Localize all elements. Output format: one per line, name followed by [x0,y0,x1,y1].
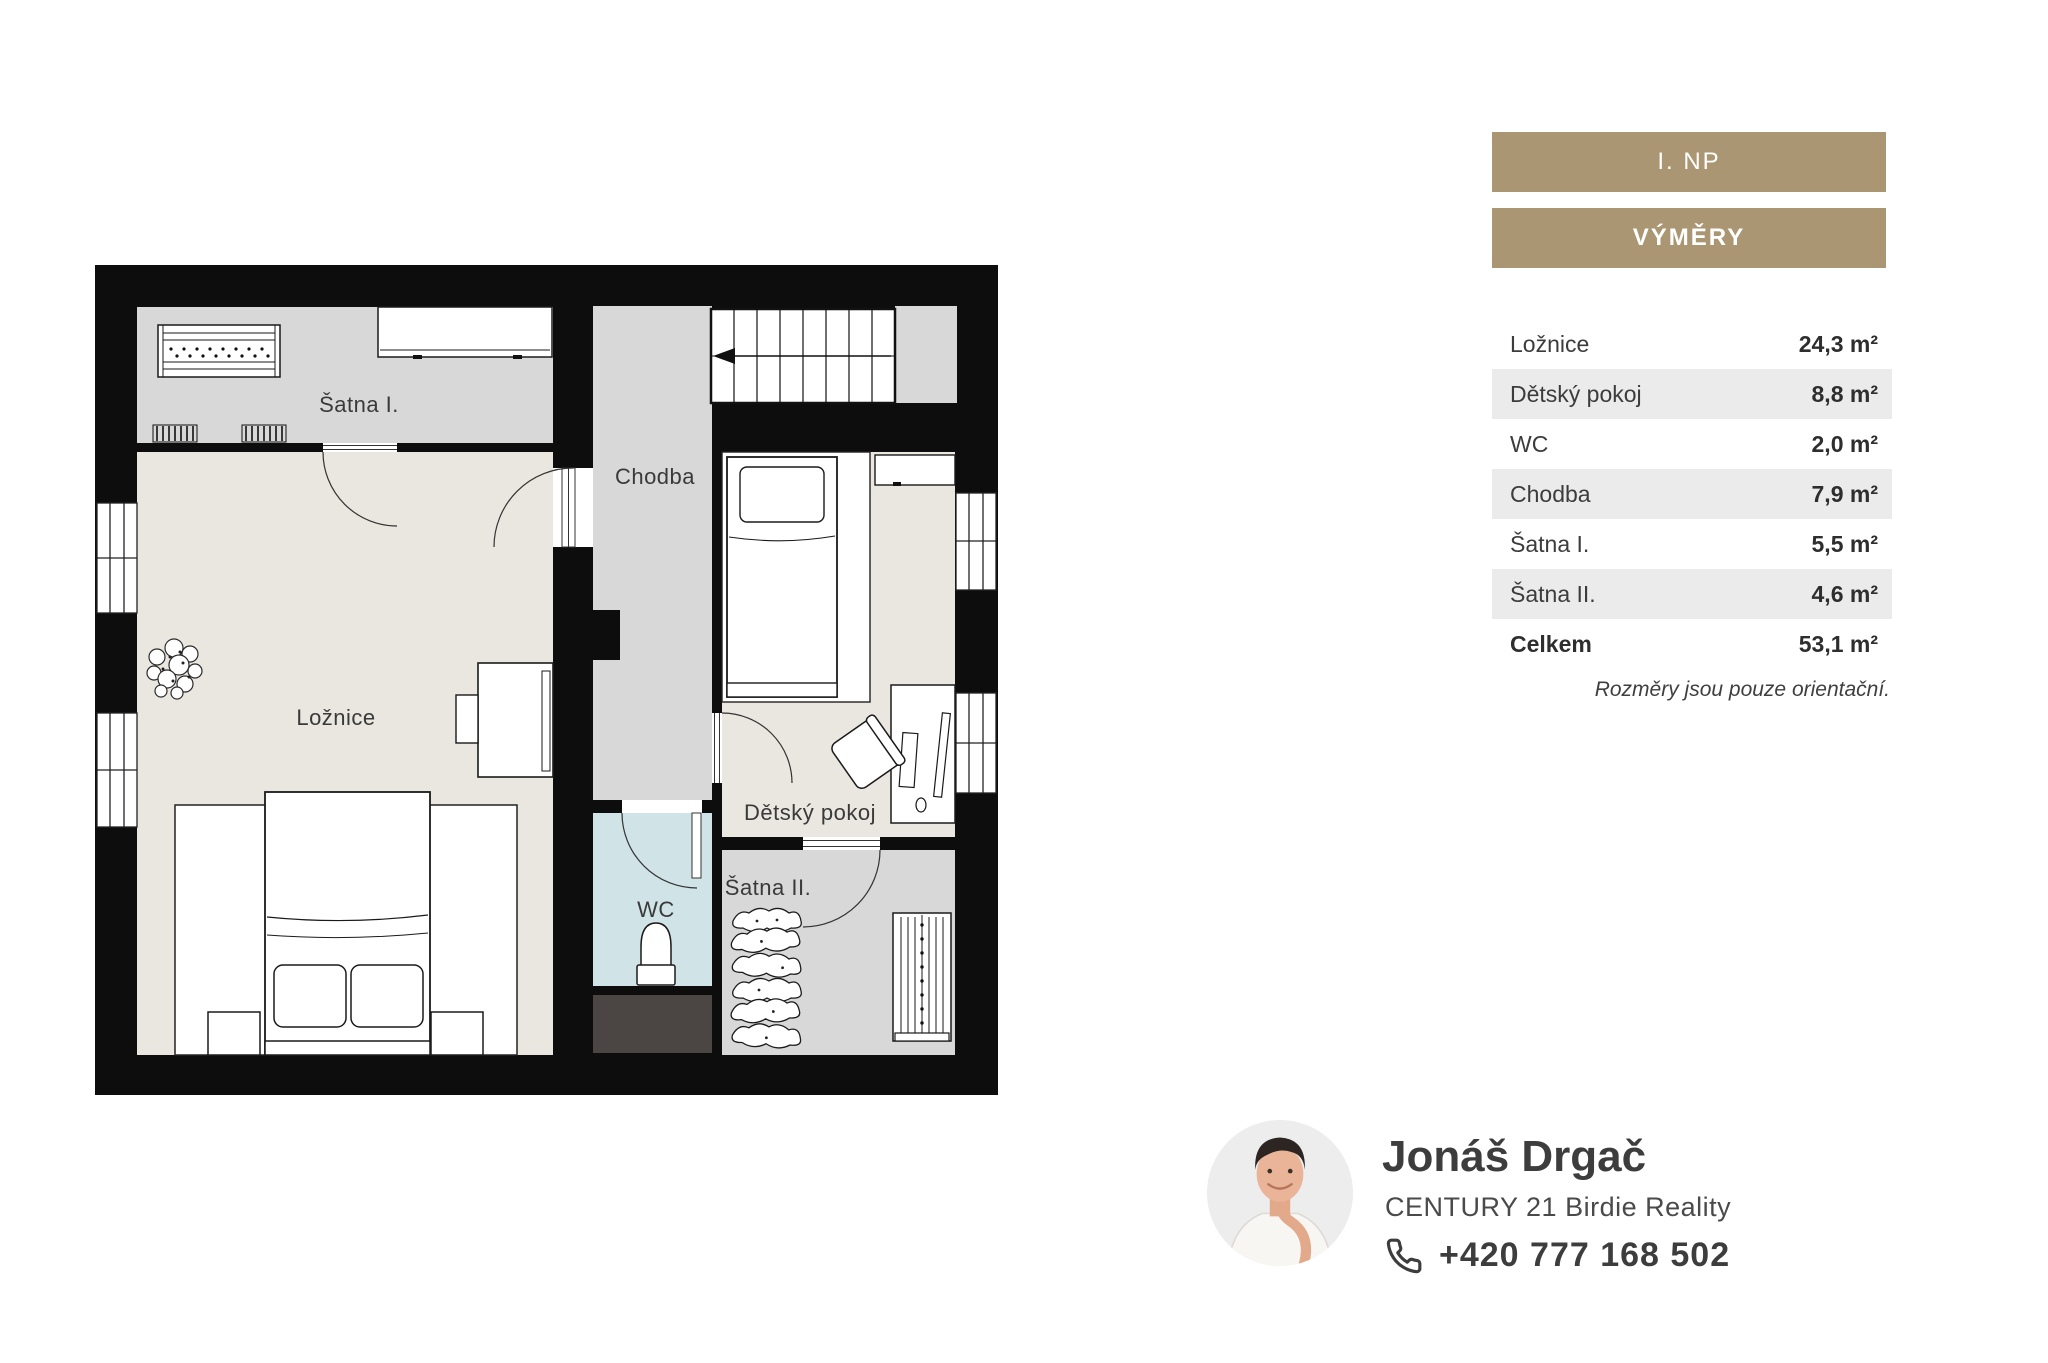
table-row: Šatna I.5,5 m² [1492,519,1892,569]
table-row: Šatna II.4,6 m² [1492,569,1892,619]
row-value: 2,0 m² [1812,431,1878,458]
footboard [727,683,837,697]
cabinet-detsky [875,455,955,486]
row-label: Celkem [1510,631,1592,658]
bed-detsky [722,452,870,702]
toilet [637,923,675,985]
floor-tab-button[interactable]: I. NP [1492,132,1886,192]
room-label-satna2: Šatna II. [725,875,811,900]
table-row: Chodba7,9 m² [1492,469,1892,519]
headboard [265,1041,430,1055]
row-label: Chodba [1510,481,1591,508]
stair-landing-floor [895,306,957,403]
row-label: Šatna II. [1510,581,1596,608]
row-value: 24,3 m² [1799,331,1878,358]
agent-phone-number[interactable]: +420 777 168 502 [1439,1236,1730,1275]
room-label-wc: WC [637,897,675,922]
table-row: Ložnice24,3 m² [1492,319,1892,369]
staircase [711,309,895,403]
row-label: Dětský pokoj [1510,381,1642,408]
bed-loznice [175,792,517,1055]
room-label-detsky: Dětský pokoj [744,800,876,825]
row-value: 8,8 m² [1812,381,1878,408]
row-label: Šatna I. [1510,531,1589,558]
agent-name: Jonáš Drgač [1382,1132,1646,1182]
mouse [916,798,926,812]
disclaimer-note: Rozměry jsou pouze orientační. [1492,678,1890,702]
window-left-2 [97,713,137,827]
room-label-loznice: Ložnice [296,705,375,730]
room-label-satna1: Šatna I. [319,392,399,417]
agent-photo [1207,1120,1353,1266]
areas-table: Ložnice24,3 m² Dětský pokoj8,8 m² WC2,0 … [1492,319,1892,669]
table-row: WC2,0 m² [1492,419,1892,469]
agent-phone-row[interactable]: +420 777 168 502 [1385,1236,1730,1275]
pillow [740,467,824,522]
row-label: Ložnice [1510,331,1589,358]
window-left-1 [97,503,137,613]
row-value: 4,6 m² [1812,581,1878,608]
row-value: 7,9 m² [1812,481,1878,508]
shaft [593,995,712,1053]
areas-tab-button[interactable]: VÝMĚRY [1492,208,1886,268]
wardrobe-satna1 [158,325,280,377]
row-value: 5,5 m² [1812,531,1878,558]
phone-icon [1385,1237,1423,1275]
pillow [351,965,423,1027]
chodba-pillar [593,610,620,660]
floorplan: Šatna I. Chodba Ložnice Dětský pokoj WC … [95,265,998,1095]
window-right-1 [956,493,996,590]
agent-avatar [1207,1120,1353,1266]
room-label-chodba: Chodba [615,464,695,489]
wardrobe-satna2 [893,913,951,1041]
table-row: Dětský pokoj8,8 m² [1492,369,1892,419]
table-row-total: Celkem53,1 m² [1492,619,1892,669]
nightstand [431,1012,483,1055]
agent-company: CENTURY 21 Birdie Reality [1385,1192,1731,1223]
pillow [274,965,346,1027]
nightstand [208,1012,260,1055]
room-chodba-floor [593,306,712,800]
floorplan-svg: Šatna I. Chodba Ložnice Dětský pokoj WC … [95,265,998,1095]
row-label: WC [1510,431,1548,458]
row-value: 53,1 m² [1799,631,1878,658]
window-right-2 [956,693,996,793]
cabinet-satna1 [378,307,552,359]
